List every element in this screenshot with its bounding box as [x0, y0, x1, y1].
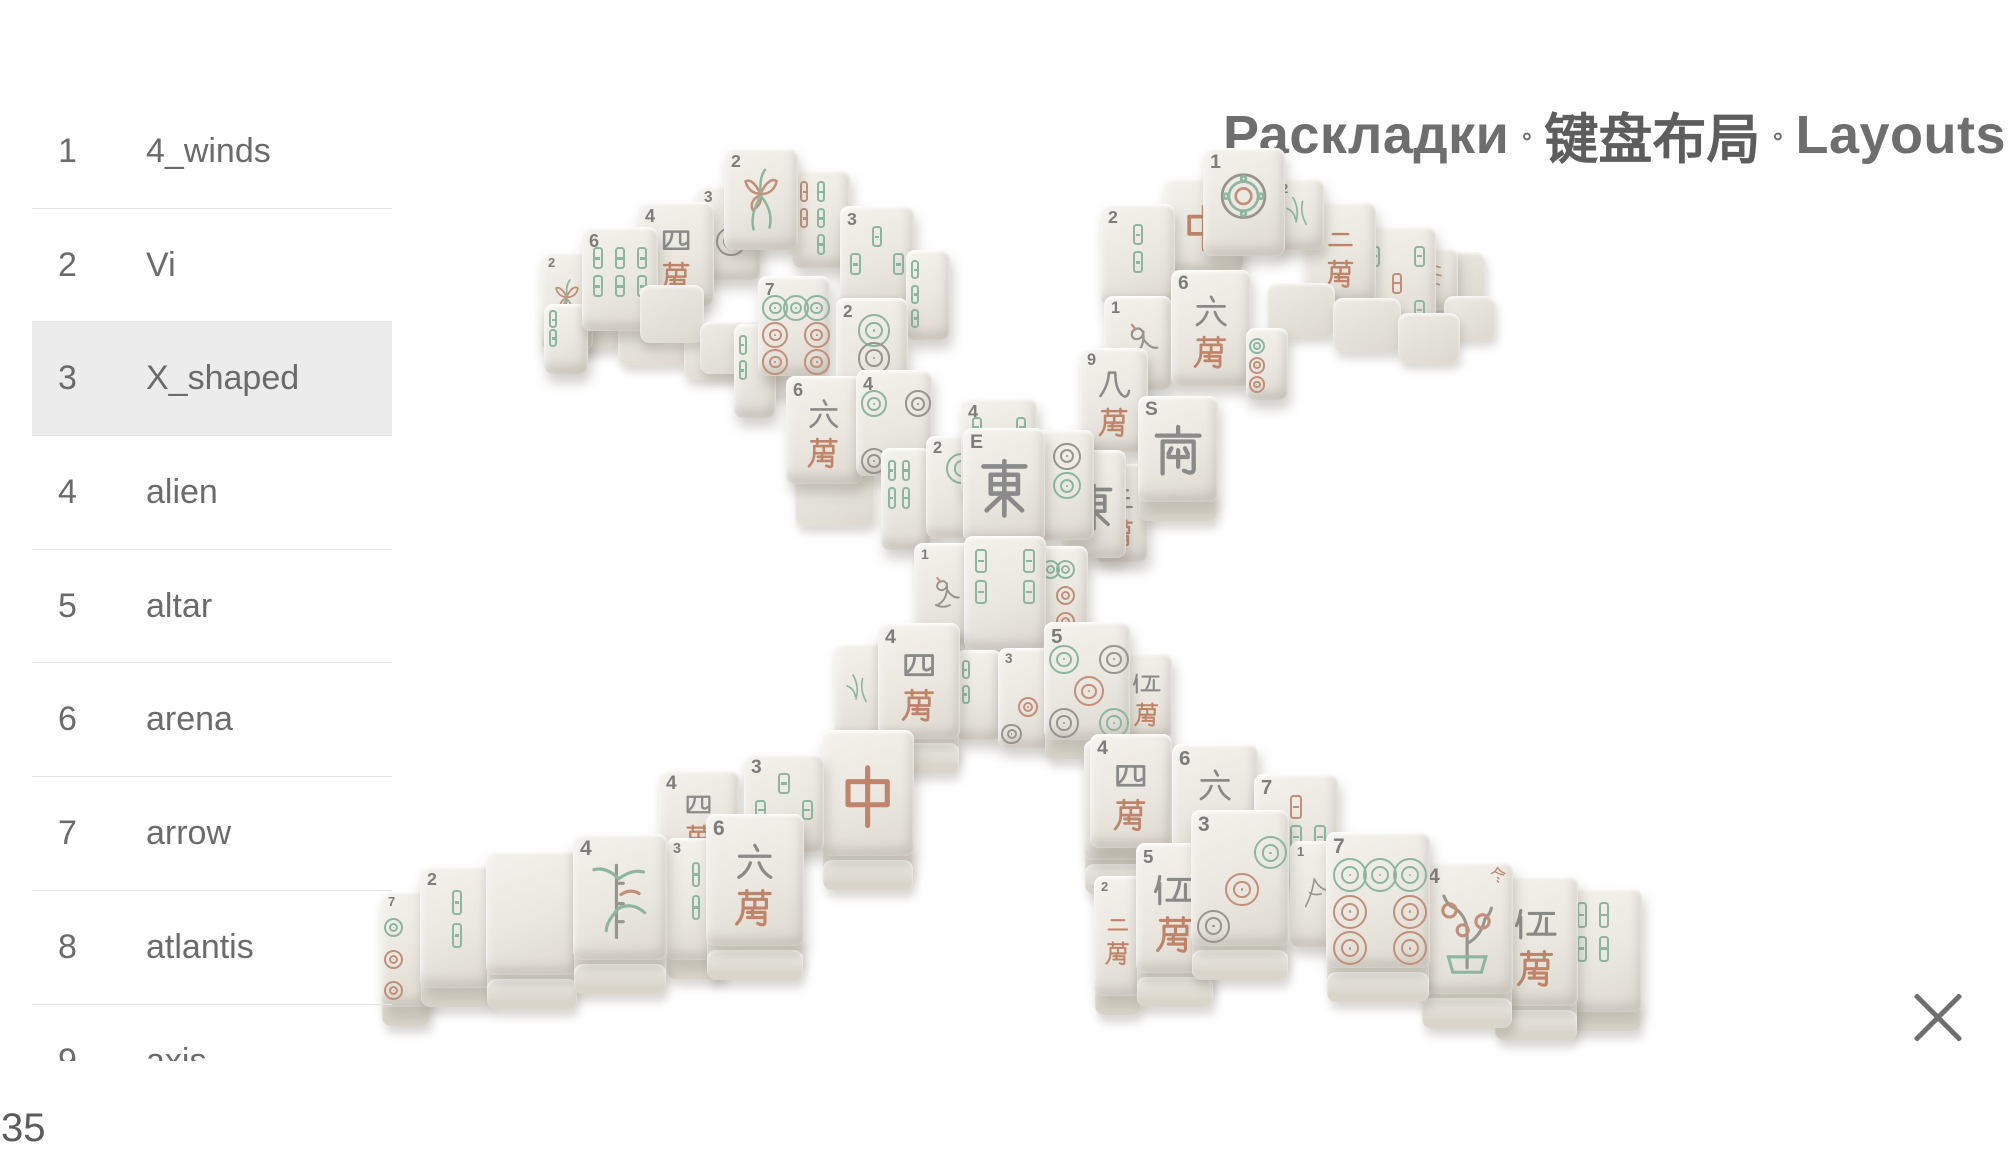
- bamboo-stick: [872, 226, 882, 247]
- tile-bamboo-partial: [881, 448, 931, 550]
- layout-item-label: 4_winds: [146, 132, 271, 171]
- tile-stack-edge: [1327, 972, 1429, 1002]
- tile-corner-label: 3: [673, 841, 681, 857]
- bamboo-stick: [452, 890, 462, 916]
- layout-item-axis[interactable]: 9axis: [32, 1005, 392, 1062]
- layout-item-label: X_shaped: [146, 359, 299, 398]
- tile-art-orchid: [724, 148, 798, 250]
- tile-corner-label: 2: [843, 301, 853, 322]
- tile-tile-top: [1333, 298, 1401, 352]
- circle-pip: [1053, 443, 1080, 470]
- tile-4-bamboo-plant: 4: [573, 834, 667, 960]
- tile-stack-edge: [1192, 950, 1288, 980]
- circle-pip: [1249, 376, 1266, 393]
- bamboo-stick: [893, 253, 903, 274]
- bamboo-stick: [549, 310, 557, 328]
- circle-pip: [1333, 931, 1367, 965]
- bamboo-stick: [962, 685, 970, 704]
- layout-item-label: arrow: [146, 814, 231, 853]
- tile-face: [878, 623, 960, 739]
- bamboo-stick: [911, 309, 919, 328]
- layout-item-number: 8: [32, 928, 146, 967]
- bamboo-stick: [850, 253, 860, 274]
- circle-pip: [905, 390, 932, 417]
- layout-item-number: 1: [32, 132, 146, 171]
- circle-pip: [762, 322, 788, 348]
- circle-pip: [804, 349, 830, 375]
- bamboo-stick: [593, 275, 604, 297]
- bamboo-stick: [1133, 251, 1143, 272]
- circle-pip: [1249, 357, 1266, 374]
- bamboo-stick: [800, 181, 808, 202]
- bamboo-stick: [800, 208, 808, 229]
- circle-pip: [1053, 472, 1080, 499]
- bamboo-stick: [1290, 795, 1302, 818]
- tile-4-characters: 4: [1090, 734, 1172, 848]
- tile-stack-edge: [823, 860, 913, 890]
- bamboo-stick: [911, 260, 919, 279]
- layout-item-number: 6: [32, 700, 146, 739]
- tile-face: [1094, 876, 1142, 996]
- tile-7-circles: 7: [1326, 832, 1430, 968]
- tile-corner-label: 3: [1198, 813, 1210, 837]
- bamboo-stick: [1023, 580, 1034, 604]
- circle-pip: [804, 322, 830, 348]
- tile-winter-plum: 4: [1421, 862, 1513, 994]
- bamboo-stick: [593, 247, 604, 269]
- circle-pip: [1333, 858, 1367, 892]
- bamboo-stick: [911, 285, 919, 304]
- tile-blank-tile: [486, 851, 578, 975]
- bamboo-stick: [1414, 246, 1425, 267]
- layout-item-X_shaped[interactable]: 3X_shaped: [32, 322, 392, 436]
- tile-art-bigdot: [1203, 148, 1285, 256]
- tile-face: [706, 814, 804, 946]
- tile-flower-orchid: 2: [724, 148, 798, 250]
- circle-pip: [804, 295, 830, 321]
- circle-pip: [1049, 708, 1079, 738]
- tile-stack-edge: [487, 979, 577, 1009]
- layout-item-altar[interactable]: 5altar: [32, 550, 392, 664]
- circle-pip: [1393, 895, 1427, 929]
- bamboo-stick: [778, 773, 789, 794]
- tile-2-bamboo: 2: [1101, 204, 1175, 306]
- tile-6-characters: 6: [786, 376, 862, 484]
- bamboo-stick: [615, 275, 626, 297]
- tile-stack-edge: [574, 964, 666, 994]
- tile-2-bamboo: 2: [420, 866, 494, 988]
- tile-face: [1090, 734, 1172, 848]
- circle-pip: [1197, 910, 1230, 943]
- layout-item-arrow[interactable]: 7arrow: [32, 777, 392, 891]
- circle-pip: [1393, 931, 1427, 965]
- circle-pip: [1249, 338, 1266, 355]
- tile-4-characters: 4: [878, 623, 960, 739]
- tile-1-circle: 1: [1203, 148, 1285, 256]
- layout-item-arena[interactable]: 6arena: [32, 663, 392, 777]
- circle-pip: [1333, 895, 1367, 929]
- circle-pip: [1074, 676, 1104, 706]
- tile-3-circles: 3: [1191, 810, 1289, 946]
- layout-item-number: 3: [32, 359, 146, 398]
- bamboo-stick: [1599, 902, 1610, 928]
- layout-item-number: 4: [32, 473, 146, 512]
- tile-corner-label: 2: [427, 869, 437, 890]
- tile-corner-label: 3: [847, 209, 857, 230]
- tile-circles-partial: [1246, 328, 1288, 400]
- tile-3-bamboo: 3: [840, 206, 914, 308]
- bamboo-stick: [1133, 224, 1143, 245]
- layout-item-label: altar: [146, 587, 212, 626]
- tile-art-plum: [1421, 862, 1513, 994]
- circle-pip: [1001, 724, 1022, 745]
- bamboo-stick: [1023, 549, 1034, 573]
- layout-item-4_winds[interactable]: 14_winds: [32, 95, 392, 209]
- circle-pip: [1056, 560, 1075, 579]
- layout-item-atlantis[interactable]: 8atlantis: [32, 891, 392, 1005]
- circle-pip: [1018, 697, 1039, 718]
- tile-face: [1171, 270, 1251, 386]
- layout-count: 35: [1, 1106, 46, 1151]
- bamboo-stick: [888, 487, 896, 508]
- layout-item-number: 5: [32, 587, 146, 626]
- tile-face: [1138, 396, 1218, 502]
- bamboo-stick: [902, 460, 910, 481]
- bamboo-stick: [739, 360, 747, 380]
- bamboo-stick: [692, 862, 700, 888]
- circle-pip: [1393, 858, 1427, 892]
- tile-6-characters: 6: [706, 814, 804, 946]
- layout-item-label: arena: [146, 700, 233, 739]
- tile-face: [822, 730, 914, 856]
- bamboo-stick: [817, 181, 825, 202]
- circle-pip: [1049, 645, 1079, 675]
- circle-pip: [1056, 586, 1075, 605]
- layout-item-label: Vi: [146, 246, 176, 285]
- close-button[interactable]: [1907, 987, 1969, 1049]
- tile-6-characters: 6: [1171, 270, 1251, 386]
- bamboo-stick: [962, 660, 970, 679]
- tile-east-wind: E: [963, 428, 1045, 542]
- circle-pip: [861, 390, 888, 417]
- bamboo-stick: [1577, 902, 1588, 928]
- circle-pip: [1363, 858, 1397, 892]
- bamboo-stick: [817, 234, 825, 255]
- tile-art-bambooplant: [573, 834, 667, 960]
- bamboo-stick: [817, 208, 825, 229]
- bamboo-stick: [1392, 273, 1403, 294]
- tile-5-circles: 5: [1044, 622, 1130, 740]
- tile-corner-label: 7: [1333, 835, 1345, 859]
- tile-tile-top: [1398, 313, 1460, 363]
- tile-art-sprig: [834, 643, 884, 741]
- tile-stack-edge: [1422, 998, 1512, 1028]
- layout-item-label: alien: [146, 473, 218, 512]
- bamboo-stick: [975, 549, 986, 573]
- tile-stack-edge: [707, 950, 803, 980]
- tile-7-circles: 7: [758, 276, 830, 376]
- bamboo-stick: [1577, 936, 1588, 962]
- bamboo-stick: [637, 247, 648, 269]
- tile-tile-top: [640, 285, 704, 343]
- circle-pip: [1225, 873, 1258, 906]
- tile-corner-label: 2: [1108, 207, 1118, 228]
- layout-item-Vi[interactable]: 2Vi: [32, 209, 392, 323]
- tile-corner-label: 3: [751, 757, 762, 779]
- bamboo-stick: [549, 329, 557, 347]
- bamboo-stick: [739, 335, 747, 355]
- tile-bamboo-sprig-partial: [834, 643, 884, 741]
- tile-bamboo-partial: [956, 650, 1002, 740]
- tile-stack-edge: [1137, 977, 1213, 1007]
- bamboo-stick: [692, 895, 700, 921]
- circle-pip: [762, 349, 788, 375]
- tile-2-bamboo: [964, 536, 1046, 650]
- layout-item-number: 2: [32, 246, 146, 285]
- bamboo-stick: [1599, 936, 1610, 962]
- layout-item-number: 9: [32, 1042, 146, 1061]
- circle-pip: [1099, 645, 1129, 675]
- tile-corner-label: 3: [1005, 651, 1012, 666]
- layout-item-number: 7: [32, 814, 146, 853]
- tile-corner-label: 7: [1261, 777, 1272, 800]
- bamboo-stick: [452, 923, 462, 949]
- bamboo-stick: [902, 487, 910, 508]
- tile-face: [963, 428, 1045, 542]
- tile-corner-label: 2: [933, 439, 942, 458]
- tile-2-characters-partial: 2: [1094, 876, 1142, 996]
- layout-list[interactable]: 14_winds2Vi3X_shaped4alien5altar6arena7a…: [32, 95, 392, 1061]
- layout-item-alien[interactable]: 4alien: [32, 436, 392, 550]
- bamboo-stick: [615, 247, 626, 269]
- tile-face: [786, 376, 862, 484]
- layout-item-label: atlantis: [146, 928, 254, 967]
- tile-red-center: [822, 730, 914, 856]
- circle-pip: [1254, 836, 1287, 869]
- tile-south-wind: S: [1138, 396, 1218, 502]
- layout-item-label: axis: [146, 1042, 206, 1061]
- bamboo-stick: [975, 580, 986, 604]
- bamboo-stick: [888, 460, 896, 481]
- tile-bamboo-partial: [906, 250, 950, 340]
